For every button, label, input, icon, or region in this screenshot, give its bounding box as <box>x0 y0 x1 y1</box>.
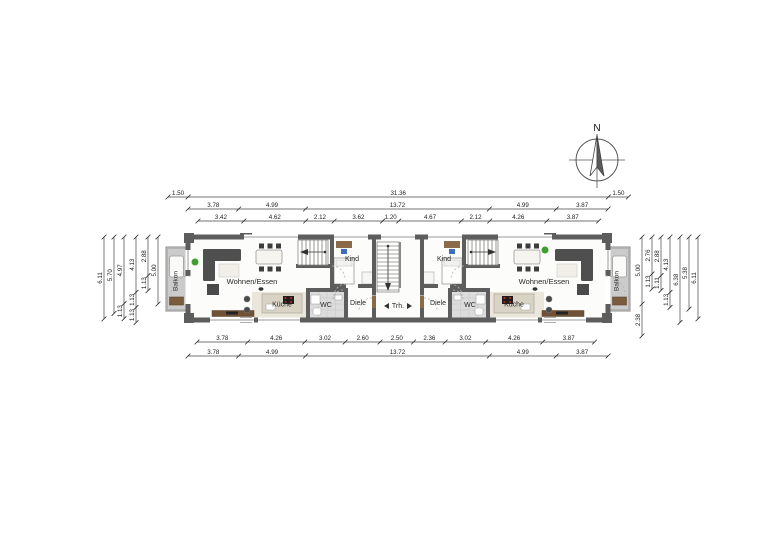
room-label-balcony-left: Balkon <box>173 271 180 291</box>
dim-label: 3.87 <box>563 335 576 342</box>
dim-label: 5.38 <box>682 266 689 279</box>
dim-label: 2.12 <box>469 214 482 221</box>
dim-label: 1.20 <box>385 214 398 221</box>
dim-label: 4.13 <box>663 258 670 271</box>
dim-label: 6.11 <box>691 272 698 284</box>
dim-label: 3.87 <box>576 202 589 209</box>
compass-needle-west <box>590 135 597 176</box>
desk <box>336 241 352 248</box>
north-compass: N <box>569 123 625 188</box>
dim-label: 1.50 <box>612 190 625 197</box>
dim-label: 1.13 <box>117 305 124 318</box>
dim-label: 5.70 <box>107 269 114 282</box>
stool <box>546 307 552 313</box>
dim-label: 3.62 <box>352 214 365 221</box>
floor-plan-page: Wohnen/Essen Wohnen/Essen Küche Küche WC… <box>0 0 778 550</box>
desk-chair <box>449 249 455 254</box>
north-label: N <box>593 123 600 134</box>
dim-label: 4.99 <box>266 202 279 209</box>
dim-label: 1.13 <box>141 277 148 290</box>
dim-label: 3.02 <box>459 335 472 342</box>
dim-label: 5.00 <box>151 264 158 277</box>
dimension-column: 6.11 <box>97 235 107 322</box>
dim-label: 2.76 <box>645 249 652 262</box>
stool <box>244 307 250 313</box>
dim-label: 6.11 <box>97 272 104 284</box>
plant-icon <box>542 247 549 254</box>
dim-label: 3.42 <box>215 214 228 221</box>
plant-icon <box>192 259 199 266</box>
dimension-row: 3.784.9913.724.993.87 <box>186 202 611 211</box>
dim-label: 3.02 <box>319 335 332 342</box>
dim-label: 2.88 <box>141 250 148 263</box>
dim-label: 3.87 <box>576 349 589 356</box>
dimension-column: 6.11 <box>691 235 701 322</box>
dim-label: 2.36 <box>423 335 436 342</box>
room-label-kitchen-left: Küche <box>272 302 292 309</box>
ottoman <box>207 284 219 295</box>
coffee-table <box>219 264 239 277</box>
balcony-mat <box>613 297 627 305</box>
dim-label: 1.13 <box>645 275 652 288</box>
dim-label: 1.11 <box>654 277 661 289</box>
dimension-row: 1.5031.361.50 <box>166 190 631 199</box>
dim-label: 4.99 <box>517 202 530 209</box>
dim-label: 4.67 <box>424 214 437 221</box>
dim-label: 13.72 <box>390 202 406 209</box>
vase <box>533 287 538 291</box>
dimension-column: 5.70 <box>107 235 117 316</box>
balcony-mat <box>170 297 184 305</box>
dimension-column: 4.971.13 <box>117 235 127 322</box>
room-label-balcony-right: Balkon <box>614 271 621 291</box>
dimension-column: 4.131.131.13 <box>129 235 139 325</box>
desk <box>444 241 460 248</box>
room-label-living-right: Wohnen/Essen <box>519 277 570 286</box>
coffee-table <box>557 264 577 277</box>
dim-label: 4.97 <box>117 264 124 277</box>
dim-label: 6.38 <box>673 273 680 286</box>
room-label-kitchen-right: Küche <box>504 302 524 309</box>
dimension-row: 3.784.9913.724.993.87 <box>186 349 611 358</box>
dim-label: 1.50 <box>172 190 185 197</box>
stool <box>244 296 250 302</box>
dimension-column: 5.002.38 <box>635 235 645 339</box>
dim-label: 31.36 <box>390 190 406 197</box>
dining-set-left <box>256 244 282 272</box>
room-label-living-left: Wohnen/Essen <box>227 277 278 286</box>
dim-label: 4.26 <box>270 335 283 342</box>
room-label-child-right: Kind <box>437 256 451 263</box>
dining-set-right <box>514 244 540 272</box>
dimension-row: 3.424.622.123.621.204.672.124.263.87 <box>196 214 601 223</box>
room-label-wc-left: WC <box>320 302 332 309</box>
dim-label: 4.26 <box>512 214 525 221</box>
dim-label: 13.72 <box>390 349 406 356</box>
dim-label: 4.99 <box>517 349 530 356</box>
dim-label: 4.62 <box>269 214 282 221</box>
ottoman <box>577 284 589 295</box>
stool <box>546 296 552 302</box>
dim-label: 1.13 <box>129 308 136 321</box>
compass-needle-east <box>597 135 604 176</box>
desk-chair <box>341 249 347 254</box>
dimension-column: 5.00 <box>151 235 161 307</box>
dim-label: 1.13 <box>663 293 670 306</box>
dim-label: 3.87 <box>567 214 580 221</box>
dim-label: 2.88 <box>654 250 661 263</box>
dim-label: 2.60 <box>357 335 370 342</box>
dim-label: 2.38 <box>635 313 642 326</box>
dim-label: 2.12 <box>314 214 327 221</box>
dimension-column: 2.881.13 <box>141 235 151 294</box>
entry-door-left <box>372 296 376 308</box>
room-label-hall-left: Diele <box>350 300 366 307</box>
dim-label: 3.78 <box>207 202 220 209</box>
dim-label: 3.78 <box>216 335 229 342</box>
entry-door-right <box>420 296 424 308</box>
vase <box>259 287 264 291</box>
dim-label: 2.50 <box>391 335 404 342</box>
dim-label: 4.99 <box>266 349 279 356</box>
room-label-wc-right: WC <box>464 302 476 309</box>
dining-table <box>256 250 282 264</box>
room-label-child-left: Kind <box>345 256 359 263</box>
dim-label: 3.78 <box>207 349 220 356</box>
dim-label: 5.00 <box>635 264 642 277</box>
dimension-column: 4.131.13 <box>663 235 673 310</box>
room-label-hall-right: Diele <box>430 300 446 307</box>
room-label-stairwell: Trh. <box>392 303 404 310</box>
dim-label: 1.13 <box>129 293 136 306</box>
dimension-row: 3.784.263.022.602.502.363.024.263.87 <box>195 335 597 344</box>
floor-plan-canvas: Wohnen/Essen Wohnen/Essen Küche Küche WC… <box>0 0 778 550</box>
dim-label: 4.26 <box>508 335 521 342</box>
dim-label: 4.13 <box>129 258 136 271</box>
dining-table <box>514 250 540 264</box>
